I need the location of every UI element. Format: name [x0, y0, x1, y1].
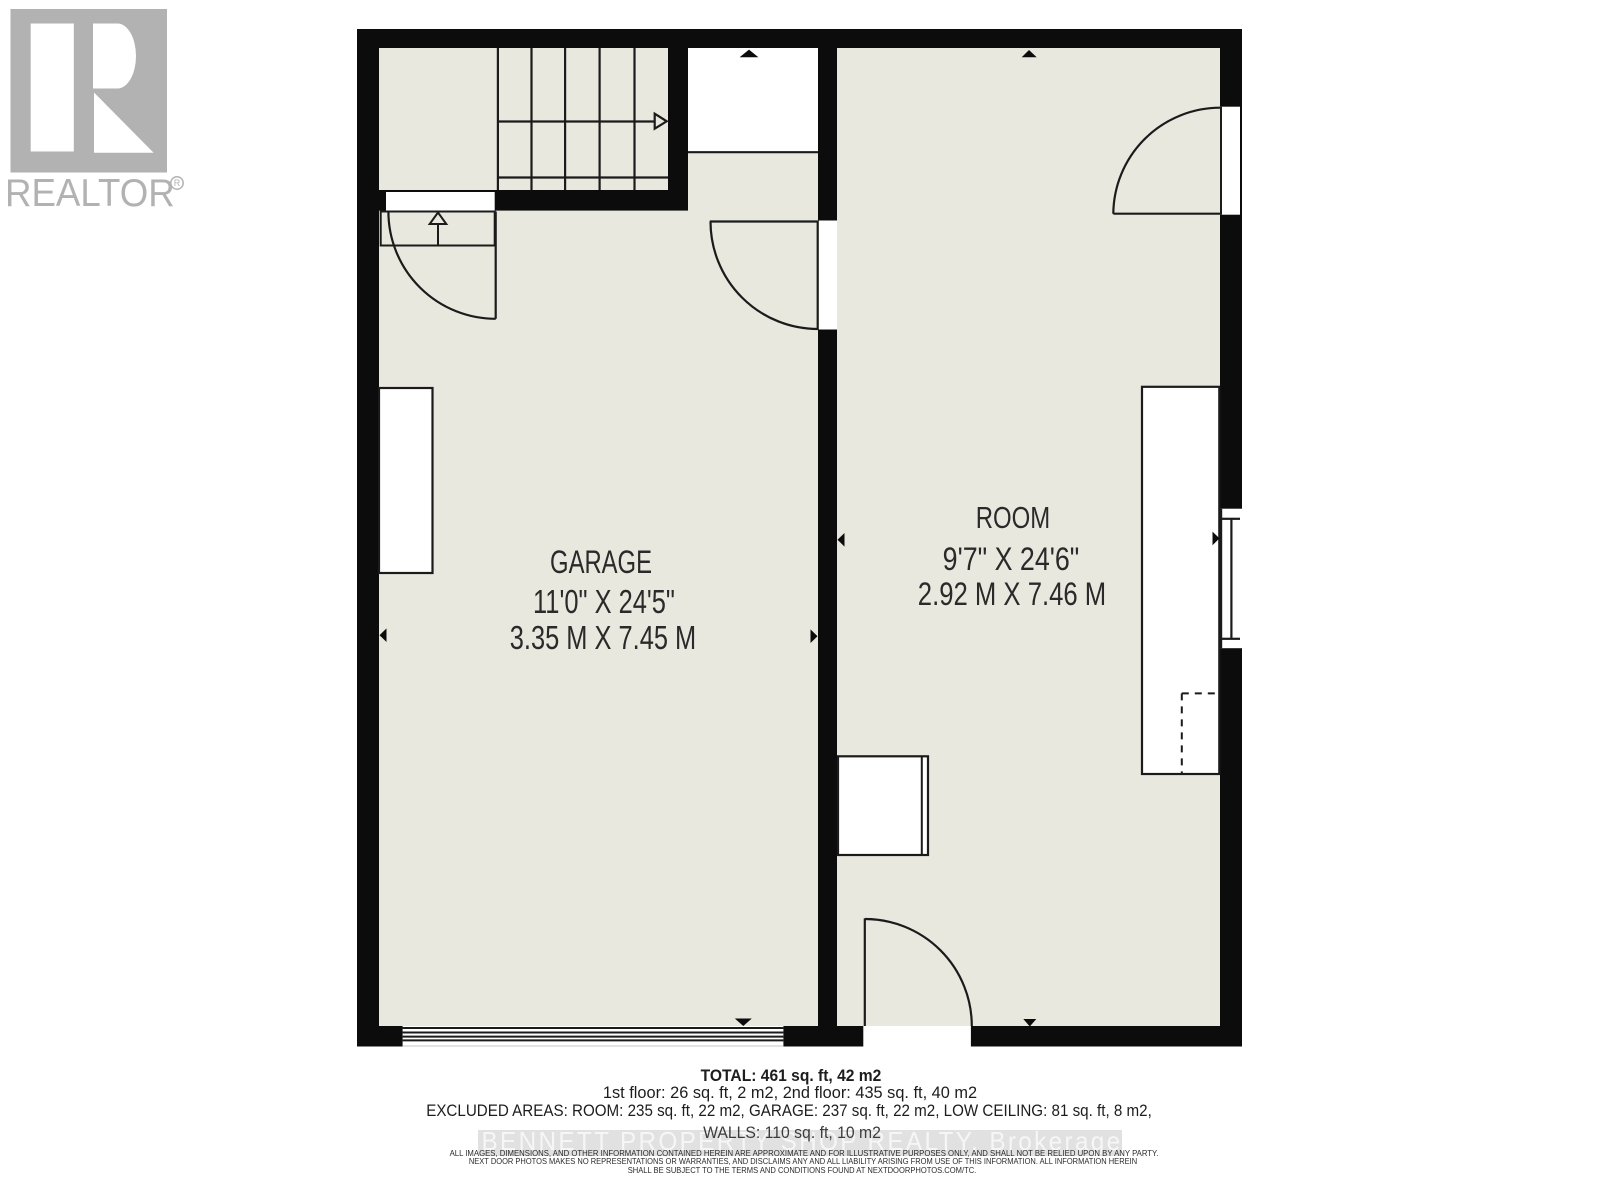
- svg-text:R: R: [174, 178, 181, 188]
